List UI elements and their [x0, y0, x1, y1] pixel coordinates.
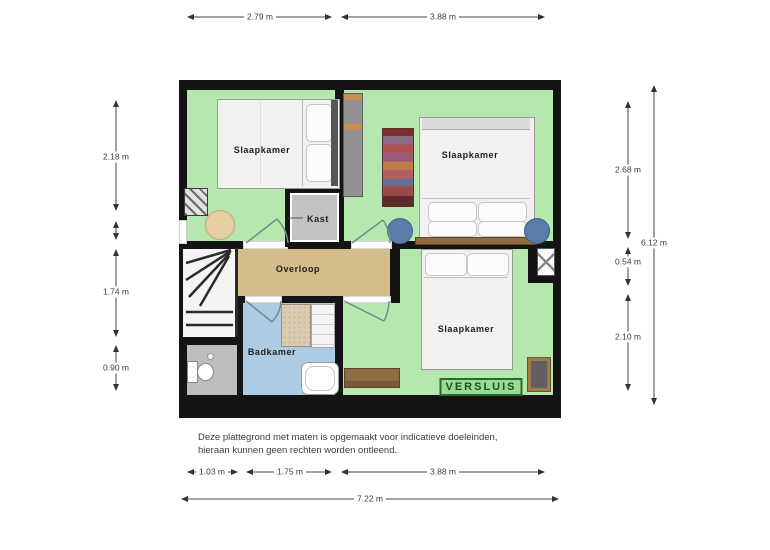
wall-stairs-bottom [179, 337, 243, 345]
label-bedroom-top-left: Slaapkamer [234, 145, 291, 155]
disclaimer-line2: hieraan kunnen geen rechten worden ontle… [198, 444, 497, 457]
dim-bottom-total: 7.22 m [354, 494, 386, 505]
toilet-sink-dot [207, 353, 214, 360]
pillow [428, 202, 477, 222]
bed-bottom [421, 249, 513, 370]
rug [382, 128, 414, 207]
stair-stringer [235, 248, 238, 337]
dim-left-bottom: 0.90 m [100, 363, 132, 374]
shower [281, 304, 311, 347]
label-bathroom: Badkamer [248, 347, 296, 357]
pillow [306, 104, 332, 142]
wardrobe-mid-cap [344, 124, 362, 130]
label-bedroom-top-right: Slaapkamer [442, 150, 499, 160]
attic-closet [537, 248, 555, 276]
dim-left-middle: 1.74 m [100, 287, 132, 298]
dim-top-right: 3.88 m [427, 12, 459, 23]
duvet-seam [260, 102, 261, 184]
bathtub-inner [305, 366, 335, 391]
pouf-blue-left [387, 218, 413, 244]
pillow [467, 253, 509, 276]
bed-top-left [217, 99, 340, 189]
pillow [478, 202, 527, 222]
dim-right-top: 2.68 m [612, 165, 644, 176]
toilet-bowl [197, 363, 214, 381]
label-closet: Kast [307, 214, 329, 224]
door-opening-bedroom-bottom [343, 296, 391, 303]
window [179, 220, 187, 244]
pillow [425, 253, 467, 276]
disclaimer-line1: Deze plattegrond met maten is opgemaakt … [198, 431, 497, 444]
disclaimer-text: Deze plattegrond met maten is opgemaakt … [198, 431, 497, 457]
duvet-fold [424, 277, 508, 278]
bench-alcove [344, 368, 400, 388]
wardrobe [343, 93, 363, 197]
pillow [306, 144, 332, 182]
wall-landing-right [390, 249, 400, 303]
dim-bottom-seg3: 3.88 m [427, 467, 459, 478]
watermark-versluis: VERSLUIS [439, 378, 522, 396]
pouf-beige [205, 210, 235, 240]
corner-shelf [184, 188, 208, 216]
pillow [478, 221, 527, 237]
door-opening-bedroom-top-left [243, 241, 288, 249]
pouf-blue-right [524, 218, 550, 244]
dim-right-bottom: 2.10 m [612, 332, 644, 343]
label-landing: Overloop [276, 264, 320, 274]
radiator-panel [311, 304, 335, 348]
label-bedroom-bottom: Slaapkamer [438, 324, 495, 334]
bed-top-right [419, 117, 535, 240]
dim-right-middle: 0.54 m [612, 257, 644, 268]
door-opening-bedroom-top-right [351, 241, 392, 249]
dim-bottom-seg2: 1.75 m [274, 467, 306, 478]
door-opening-bathroom [245, 296, 282, 303]
wall-toilet-right [237, 337, 243, 395]
dim-right-total: 6.12 m [638, 238, 670, 249]
bed-bench [415, 237, 537, 245]
dim-top-left: 2.79 m [244, 12, 276, 23]
headboard [422, 118, 530, 130]
dim-left-top: 2.18 m [100, 152, 132, 163]
dim-bottom-seg1: 1.03 m [196, 467, 228, 478]
duvet-fold [422, 198, 530, 199]
cabinet [527, 357, 551, 392]
pillow [428, 221, 477, 237]
cabinet-panel [531, 361, 547, 388]
headboard [331, 100, 338, 186]
wardrobe-top-cap [344, 94, 362, 100]
bathtub [301, 362, 339, 395]
staircase-floor [183, 248, 238, 337]
floorplan-page: Slaapkamer Slaapkamer Kast Overloop Badk… [0, 0, 770, 550]
